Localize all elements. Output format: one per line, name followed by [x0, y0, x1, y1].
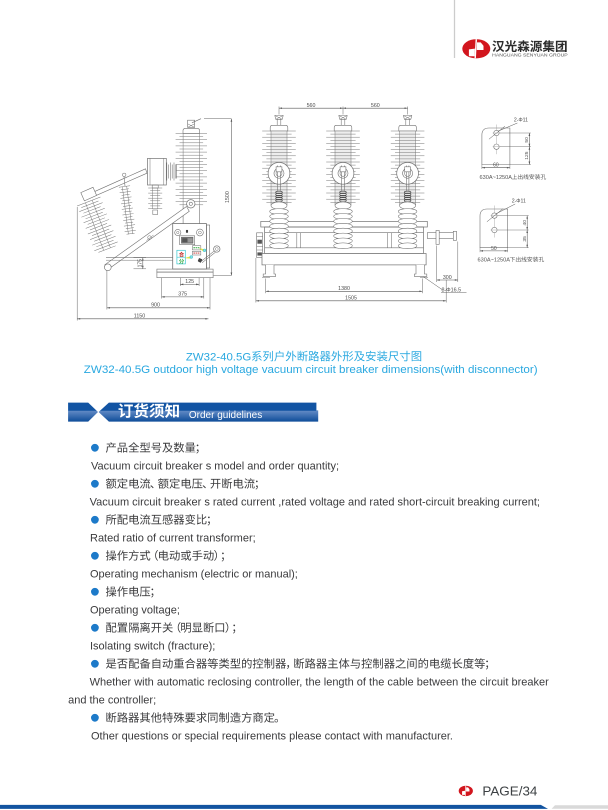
svg-text:Vacuum circuit breaker s rate: Vacuum circuit breaker s rated current ,…	[90, 497, 540, 509]
svg-text:and the controller;: and the controller;	[68, 695, 156, 707]
svg-text:375: 375	[178, 292, 187, 298]
svg-text:125: 125	[524, 151, 530, 159]
svg-text:60: 60	[493, 163, 499, 169]
svg-text:2-Φ11: 2-Φ11	[514, 118, 528, 124]
svg-text:300: 300	[443, 275, 452, 281]
svg-text:50: 50	[491, 246, 497, 252]
svg-text:125: 125	[185, 279, 194, 285]
svg-text:1500: 1500	[225, 191, 231, 203]
svg-text:Vacuum circuit breaker s mode: Vacuum circuit breaker s model and order…	[91, 461, 339, 473]
svg-text:ZW32-40.5G: ZW32-40.5G	[186, 351, 251, 363]
svg-text:Order guidelines: Order guidelines	[189, 410, 262, 421]
svg-text:35: 35	[522, 236, 528, 242]
svg-text:HANGUANG SENYUAN GROUP: HANGUANG SENYUAN GROUP	[492, 53, 568, 59]
svg-text:40: 40	[522, 220, 528, 226]
svg-text:560: 560	[307, 103, 316, 109]
svg-text:PAGE/34: PAGE/34	[482, 783, 537, 798]
svg-text:630A~1250A: 630A~1250A	[480, 175, 513, 181]
svg-text:1505: 1505	[345, 296, 357, 302]
svg-text:630A~1250A: 630A~1250A	[478, 258, 511, 264]
svg-text:Other questions or special req: Other questions or special requirements …	[91, 731, 453, 743]
svg-text:Rated ratio of current transfo: Rated ratio of current transformer;	[90, 533, 256, 545]
svg-text:50: 50	[524, 137, 530, 143]
svg-text:Isolating switch (fracture);: Isolating switch (fracture);	[90, 641, 215, 653]
svg-text:ZW32-40.5G outdoor high voltag: ZW32-40.5G outdoor high voltage vacuum c…	[84, 364, 538, 376]
svg-text:900: 900	[151, 303, 160, 309]
svg-text:Operating voltage;: Operating voltage;	[90, 605, 180, 617]
svg-text:2-Φ11: 2-Φ11	[512, 199, 526, 205]
svg-text:Whether with automatic reclosi: Whether with automatic reclosing control…	[90, 677, 550, 689]
svg-text:Operating mechanism (electric: Operating mechanism (electric or manual)…	[90, 569, 298, 581]
svg-text:175: 175	[137, 259, 143, 268]
svg-text:1150: 1150	[134, 314, 145, 320]
svg-text:560: 560	[371, 103, 380, 109]
svg-text:1380: 1380	[338, 286, 350, 292]
